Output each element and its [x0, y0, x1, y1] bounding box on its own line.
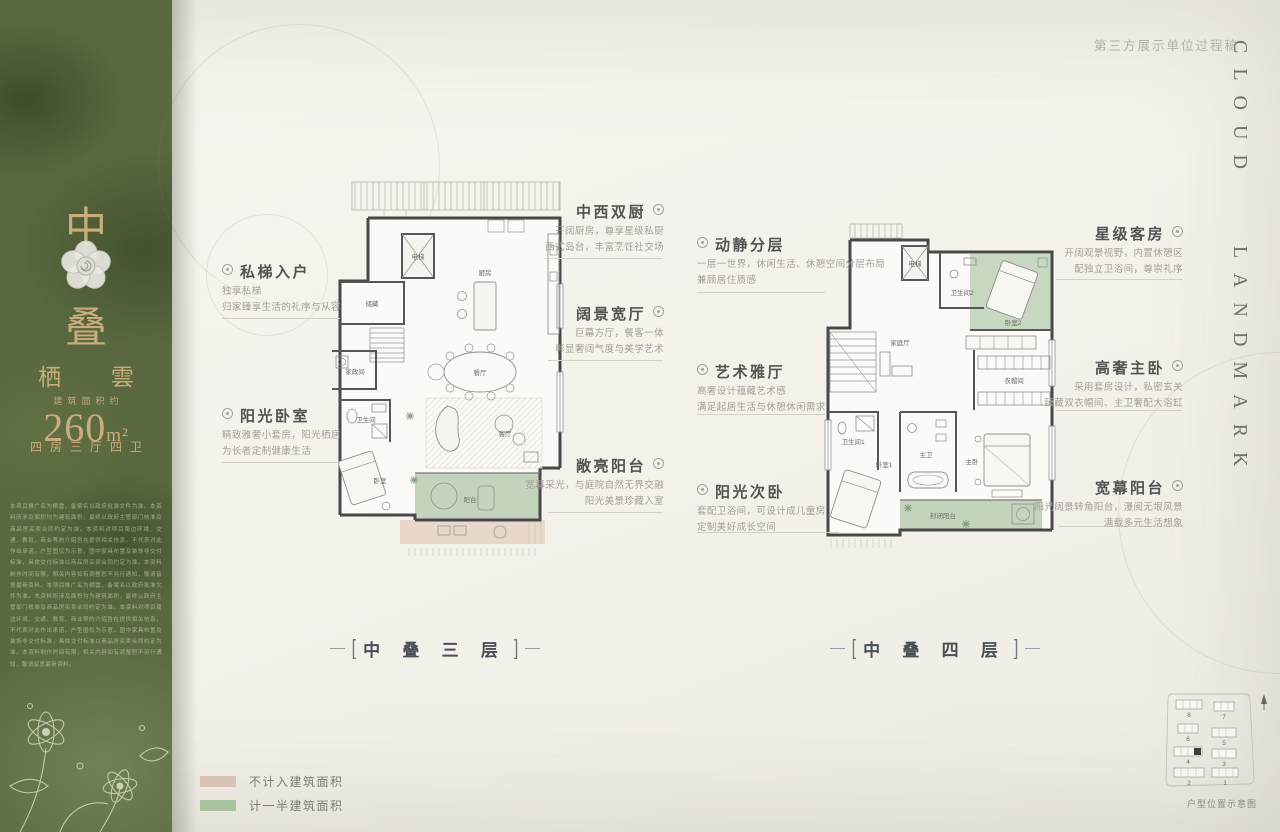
svg-text:8: 8 — [1187, 712, 1191, 719]
camellia-flower-icon — [56, 240, 116, 292]
half-area-balcony-shade — [415, 473, 540, 520]
target-icon — [697, 484, 708, 495]
svg-text:3: 3 — [1222, 761, 1226, 768]
target-icon — [697, 364, 708, 375]
leader-line — [222, 462, 340, 463]
svg-text:主卫: 主卫 — [920, 450, 934, 459]
caption-rule-right — [525, 648, 540, 649]
annotation-wide-hall: 阔景宽厅 巨幕方厅，餐客一体 彰显奢阔气度与美学艺术 — [555, 306, 664, 357]
svg-text:卫生间2: 卫生间2 — [950, 288, 974, 297]
svg-text:卫生间1: 卫生间1 — [841, 437, 865, 446]
site-location-map: 87 65 43 21 — [1156, 690, 1272, 794]
svg-text:7: 7 — [1222, 714, 1226, 721]
annotation-title: 动静分层 — [697, 237, 885, 255]
annotation-title: 宽幕阳台 — [1034, 480, 1183, 498]
svg-text:6: 6 — [1186, 736, 1190, 743]
annotation-title: 敞亮阳台 — [525, 458, 664, 476]
annotation-title: 阳光卧室 — [222, 408, 341, 426]
annotation-dual-kitchen: 中西双厨 开阔厨房，尊享星级私厨 西式岛台，丰富烹饪社交场 — [545, 204, 664, 255]
draft-watermark-note: 第三方展示单位过程稿 — [1094, 35, 1239, 54]
svg-text:卧室1: 卧室1 — [876, 460, 893, 469]
annotation-art-hall: 艺术雅厅 高奢设计蕴藏艺术感 满足起居生活与休憩休闲需求 — [697, 364, 826, 415]
elevator: 电梯 — [902, 246, 928, 280]
target-icon — [1172, 360, 1183, 371]
plan4-caption: [ 中 叠 四 层 ] — [830, 636, 1040, 661]
leader-line — [222, 318, 340, 319]
leader-line — [545, 258, 663, 259]
annotation-title: 阳光次卧 — [697, 484, 826, 502]
svg-text:衣帽间: 衣帽间 — [1004, 376, 1024, 385]
leader-line — [548, 512, 663, 513]
svg-text:餐厅: 餐厅 — [474, 368, 488, 377]
svg-text:2: 2 — [1187, 780, 1191, 787]
annotation-title: 高奢主卧 — [1044, 360, 1183, 378]
leader-line — [548, 360, 663, 361]
annotation-title: 星级客房 — [1064, 226, 1183, 244]
unit-name-char-bottom: 叠 — [0, 294, 172, 355]
target-icon — [222, 408, 233, 419]
svg-text:卧室2: 卧室2 — [1005, 318, 1022, 327]
series-name: 栖 雲 — [0, 358, 172, 392]
caption-bracket-right: ] — [1014, 636, 1018, 660]
highlighted-unit — [1194, 748, 1201, 755]
leader-line — [1056, 279, 1182, 280]
target-icon — [697, 237, 708, 248]
svg-text:5: 5 — [1222, 740, 1226, 747]
svg-text:卫生间: 卫生间 — [356, 415, 376, 424]
target-icon — [1172, 480, 1183, 491]
target-icon — [653, 458, 664, 469]
svg-text:卧室: 卧室 — [374, 476, 388, 485]
layout-description: 四房三厅四卫 — [0, 438, 172, 455]
sitemap-caption: 户型位置示意图 — [1164, 797, 1280, 810]
half-area-enclosed-balcony-shade — [900, 500, 1042, 530]
svg-text:4: 4 — [1186, 759, 1190, 766]
caption-rule-left — [830, 648, 845, 649]
target-icon — [653, 204, 664, 215]
annotation-title: 中西双厨 — [545, 204, 664, 222]
target-icon — [1172, 226, 1183, 237]
svg-text:1: 1 — [1223, 780, 1227, 787]
svg-text:封闭阳台: 封闭阳台 — [930, 511, 956, 520]
annotation-title: 私梯入户 — [222, 264, 341, 282]
elevator: 电梯 — [402, 234, 434, 278]
excluded-area-terrace-shade — [400, 520, 545, 544]
caption-bracket-right: ] — [514, 636, 518, 660]
svg-text:阳台: 阳台 — [464, 495, 477, 504]
legend-swatch-excluded — [200, 776, 236, 787]
floor-plan-3f: 设备平台 电梯 储藏 — [328, 176, 568, 576]
legend-swatch-half — [200, 800, 236, 811]
svg-text:厨房: 厨房 — [479, 268, 492, 277]
caption-bracket-left: [ — [852, 636, 856, 660]
plan3-caption: [ 中 叠 三 层 ] — [330, 636, 540, 661]
target-icon — [222, 264, 233, 275]
svg-text:电梯: 电梯 — [909, 259, 923, 268]
annotation-wide-screen-balcony: 宽幕阳台 阳光阔景转角阳台，漫阅无垠风景 满载多元生活想象 — [1034, 480, 1183, 531]
brochure-page: 中 叠 栖 雲 建筑面积约 260m² 四房三厅四卫 本项目推广名为栖雲，备案名… — [0, 0, 1280, 832]
legend-excluded-area: 不计入建筑面积 — [200, 773, 344, 790]
north-arrow-icon — [1261, 694, 1267, 710]
target-icon — [653, 306, 664, 317]
annotation-sunny-bedroom: 阳光卧室 精致雅奢小套房，阳光栖居 为长者定制健康生活 — [222, 408, 341, 459]
svg-text:储藏: 储藏 — [366, 299, 380, 308]
svg-text:主卧: 主卧 — [966, 457, 980, 466]
plan4-caption-text: 中 叠 四 层 — [863, 636, 1007, 661]
legend-label: 不计入建筑面积 — [249, 773, 344, 790]
caption-bracket-left: [ — [352, 636, 356, 660]
svg-text:电梯: 电梯 — [412, 252, 426, 261]
svg-text:客厅: 客厅 — [499, 429, 513, 438]
caption-rule-left — [330, 648, 345, 649]
brand-panel: 中 叠 栖 雲 建筑面积约 260m² 四房三厅四卫 本项目推广名为栖雲，备案名… — [0, 0, 172, 832]
page-fold-shadow — [172, 0, 198, 832]
annotation-title: 阔景宽厅 — [555, 306, 664, 324]
brand-vertical-text: CLOUD LANDMARK — [1228, 40, 1251, 680]
annotation-sunny-second-bedroom: 阳光次卧 套配卫浴间，可设计成儿童房 定制美好成长空间 — [697, 484, 826, 535]
svg-text:家庭厅: 家庭厅 — [890, 338, 910, 347]
annotation-private-elevator: 私梯入户 独享私梯 归家臻享生活的礼序与从容 — [222, 264, 341, 315]
annotation-title: 艺术雅厅 — [697, 364, 826, 382]
annotation-zoning-layers: 动静分层 一层一世界，休闲生活、休憩空间分层布局 兼顾居住质感 — [697, 237, 885, 288]
pergola-roof — [352, 182, 560, 210]
legend-label: 计一半建筑面积 — [249, 797, 344, 814]
roof-hatch — [850, 224, 902, 238]
legend-half-area: 计一半建筑面积 — [200, 797, 344, 814]
annotation-luxury-master: 高奢主卧 采用套房设计，私密玄关 臻藏双衣帽间、主卫奢配大浴缸 — [1044, 360, 1183, 411]
annotation-star-guestroom: 星级客房 开阔观景视野，内置休憩区 配独立卫浴间，尊崇礼序 — [1064, 226, 1183, 277]
annotation-bright-balcony: 敞亮阳台 宽幕采光，与庭院自然无界交融 阳光美景珍藏入室 — [525, 458, 664, 509]
building-footprints — [1174, 700, 1238, 777]
plan3-caption-text: 中 叠 三 层 — [363, 636, 507, 661]
svg-text:家政间: 家政间 — [345, 367, 365, 376]
leader-line — [697, 292, 825, 293]
disclaimer-fine-print: 本项目推广名为栖雲，备案名以政府批准文件为准。本资料所涉及面积均为建筑面积，最终… — [10, 502, 162, 671]
caption-rule-right — [1025, 648, 1040, 649]
